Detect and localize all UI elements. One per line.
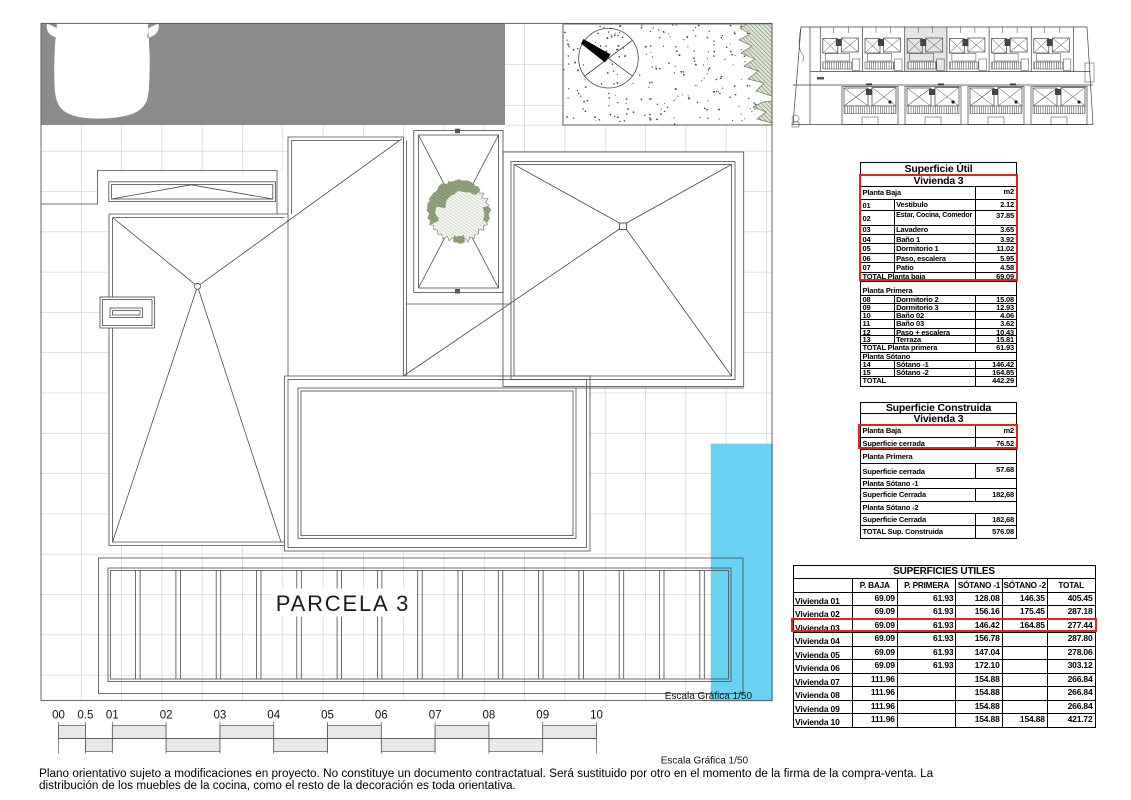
svg-text:07: 07 [429,710,442,722]
svg-text:10: 10 [590,710,603,722]
svg-text:09: 09 [536,710,549,722]
svg-text:08: 08 [483,710,496,722]
svg-text:04: 04 [267,710,280,722]
svg-text:00: 00 [52,710,65,722]
svg-text:PARCELA 3: PARCELA 3 [276,591,410,616]
svg-text:03: 03 [214,710,227,722]
svg-text:0.5: 0.5 [77,710,93,722]
svg-text:05: 05 [321,710,334,722]
svg-text:Escala Gráfica 1/50: Escala Gráfica 1/50 [661,756,749,767]
svg-text:01: 01 [106,710,119,722]
svg-text:02: 02 [160,710,173,722]
svg-text:06: 06 [375,710,388,722]
svg-text:Escala Gráfica 1/50: Escala Gráfica 1/50 [665,691,753,702]
